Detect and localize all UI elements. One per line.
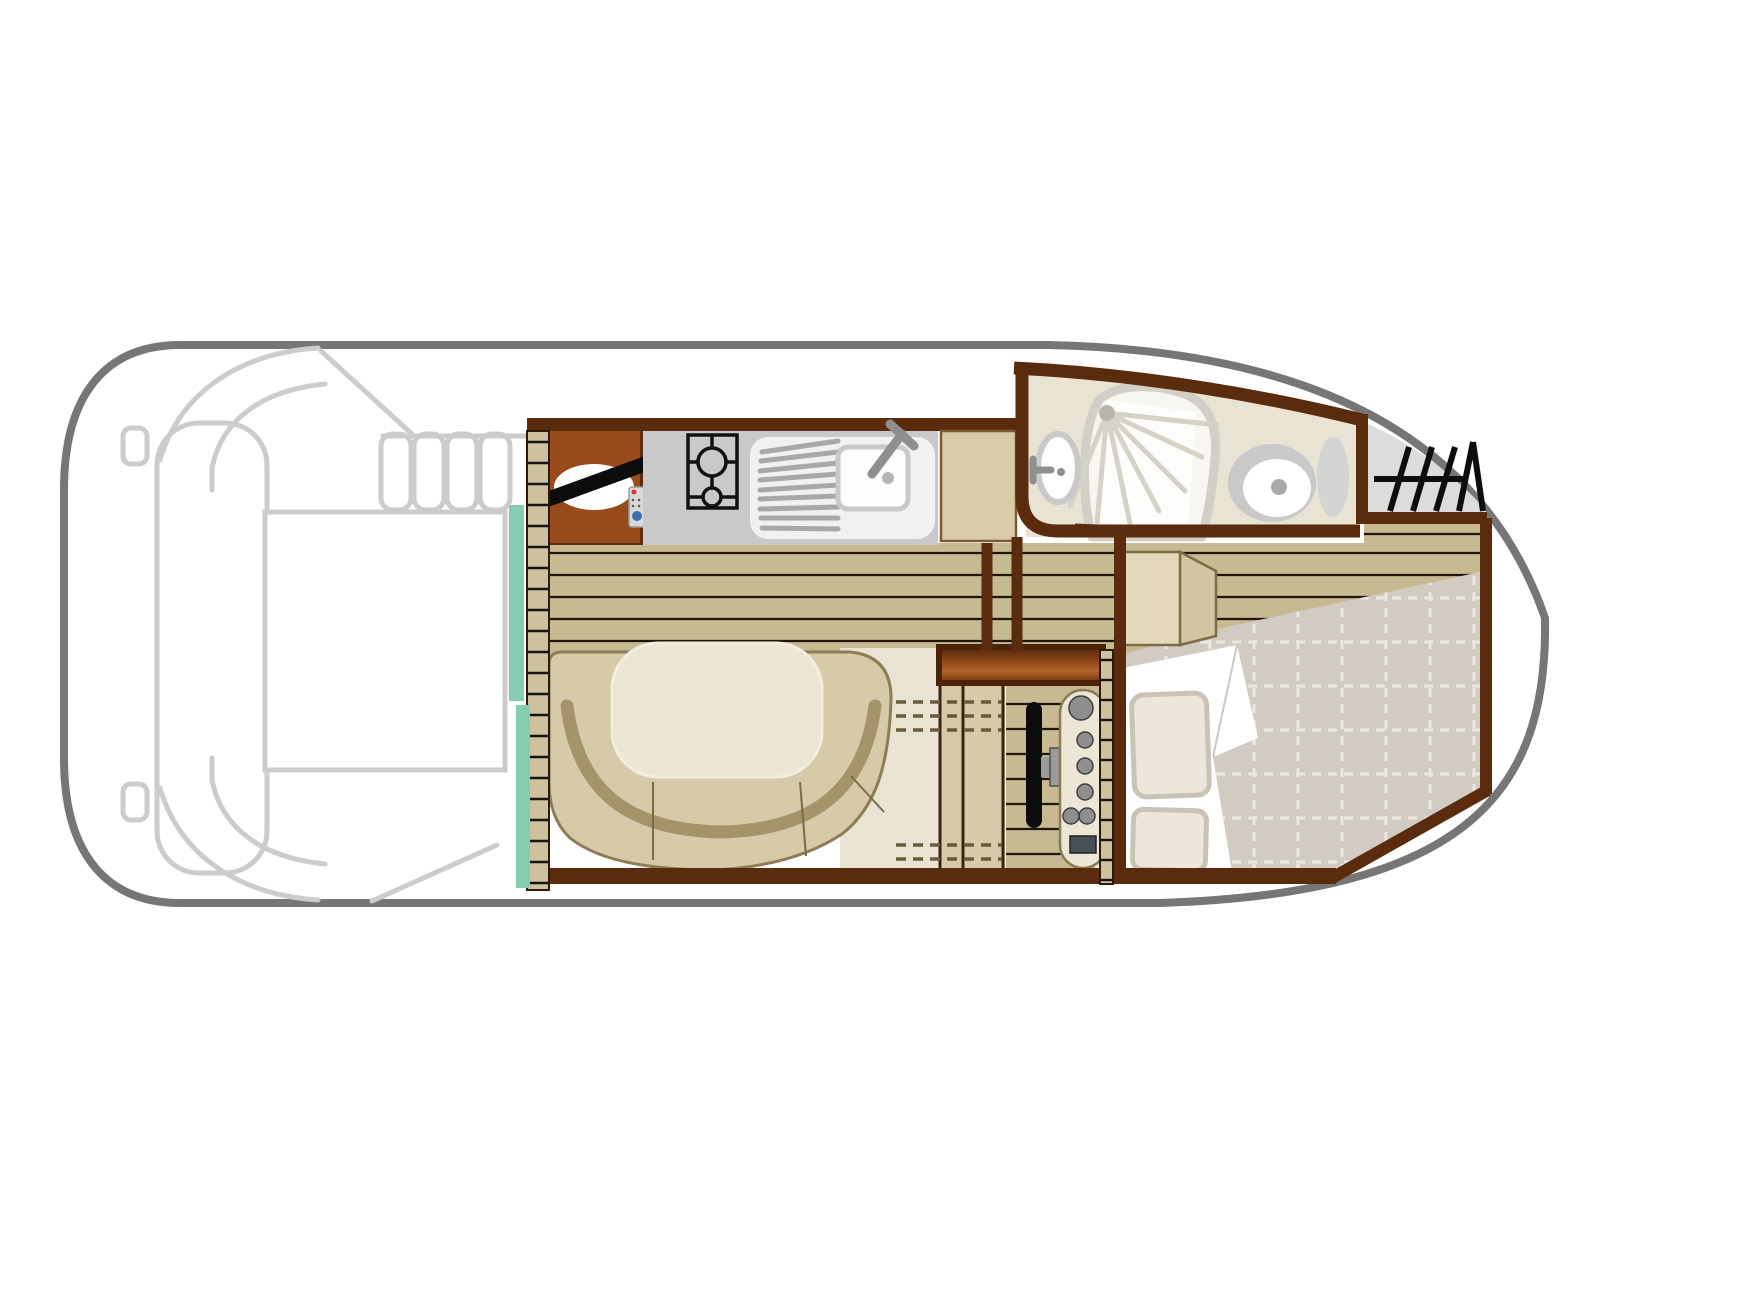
remote-control xyxy=(629,487,645,527)
toilet-cistern xyxy=(1317,437,1349,517)
boat-floor-plan-canvas xyxy=(0,0,1752,1314)
galley xyxy=(527,418,1019,545)
dinette-table xyxy=(612,643,822,777)
pillow-top xyxy=(1131,693,1210,798)
steering-wheel-icon xyxy=(1026,702,1042,828)
drain-hole xyxy=(882,472,894,484)
patio-window-lower xyxy=(516,705,530,888)
dash-display xyxy=(1070,836,1096,853)
sink xyxy=(750,424,935,539)
patio-window-upper xyxy=(509,505,524,701)
aft-deck-table xyxy=(265,512,505,770)
entry-ladder xyxy=(527,431,549,890)
helm-cupboard xyxy=(936,644,1106,686)
fridge-top xyxy=(941,431,1016,541)
boat-floor-plan xyxy=(0,0,1752,1314)
pillow-bottom xyxy=(1132,809,1207,871)
compass-gauge xyxy=(1069,696,1093,720)
bow-cabin-ladder xyxy=(1100,650,1113,884)
anchor-locker xyxy=(1368,424,1486,512)
galley-top-wall xyxy=(527,418,1019,431)
wardrobe xyxy=(1124,552,1216,645)
saloon xyxy=(549,643,891,870)
